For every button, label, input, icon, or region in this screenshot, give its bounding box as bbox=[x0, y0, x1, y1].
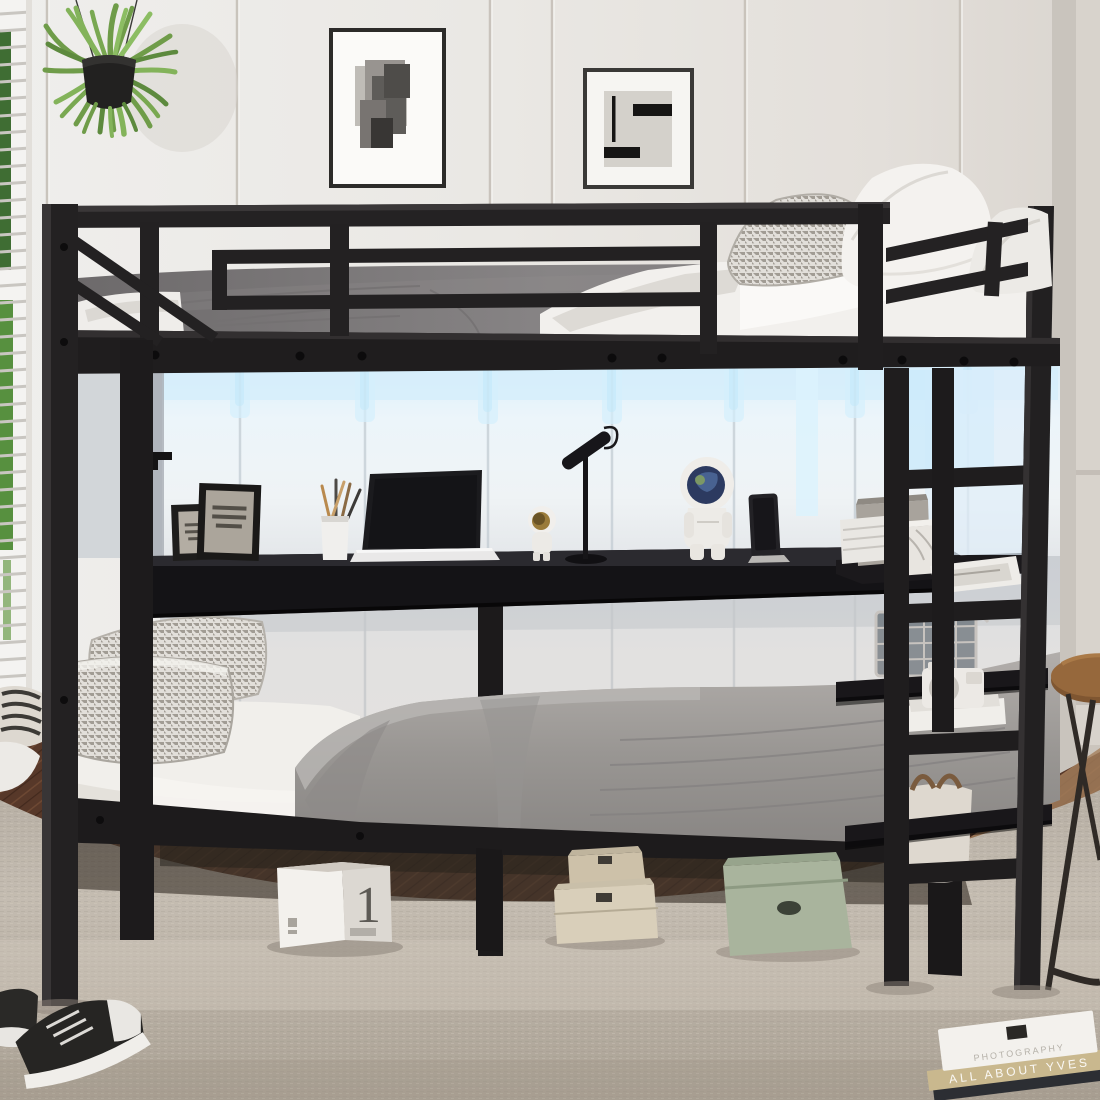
svg-text:1: 1 bbox=[355, 877, 381, 934]
